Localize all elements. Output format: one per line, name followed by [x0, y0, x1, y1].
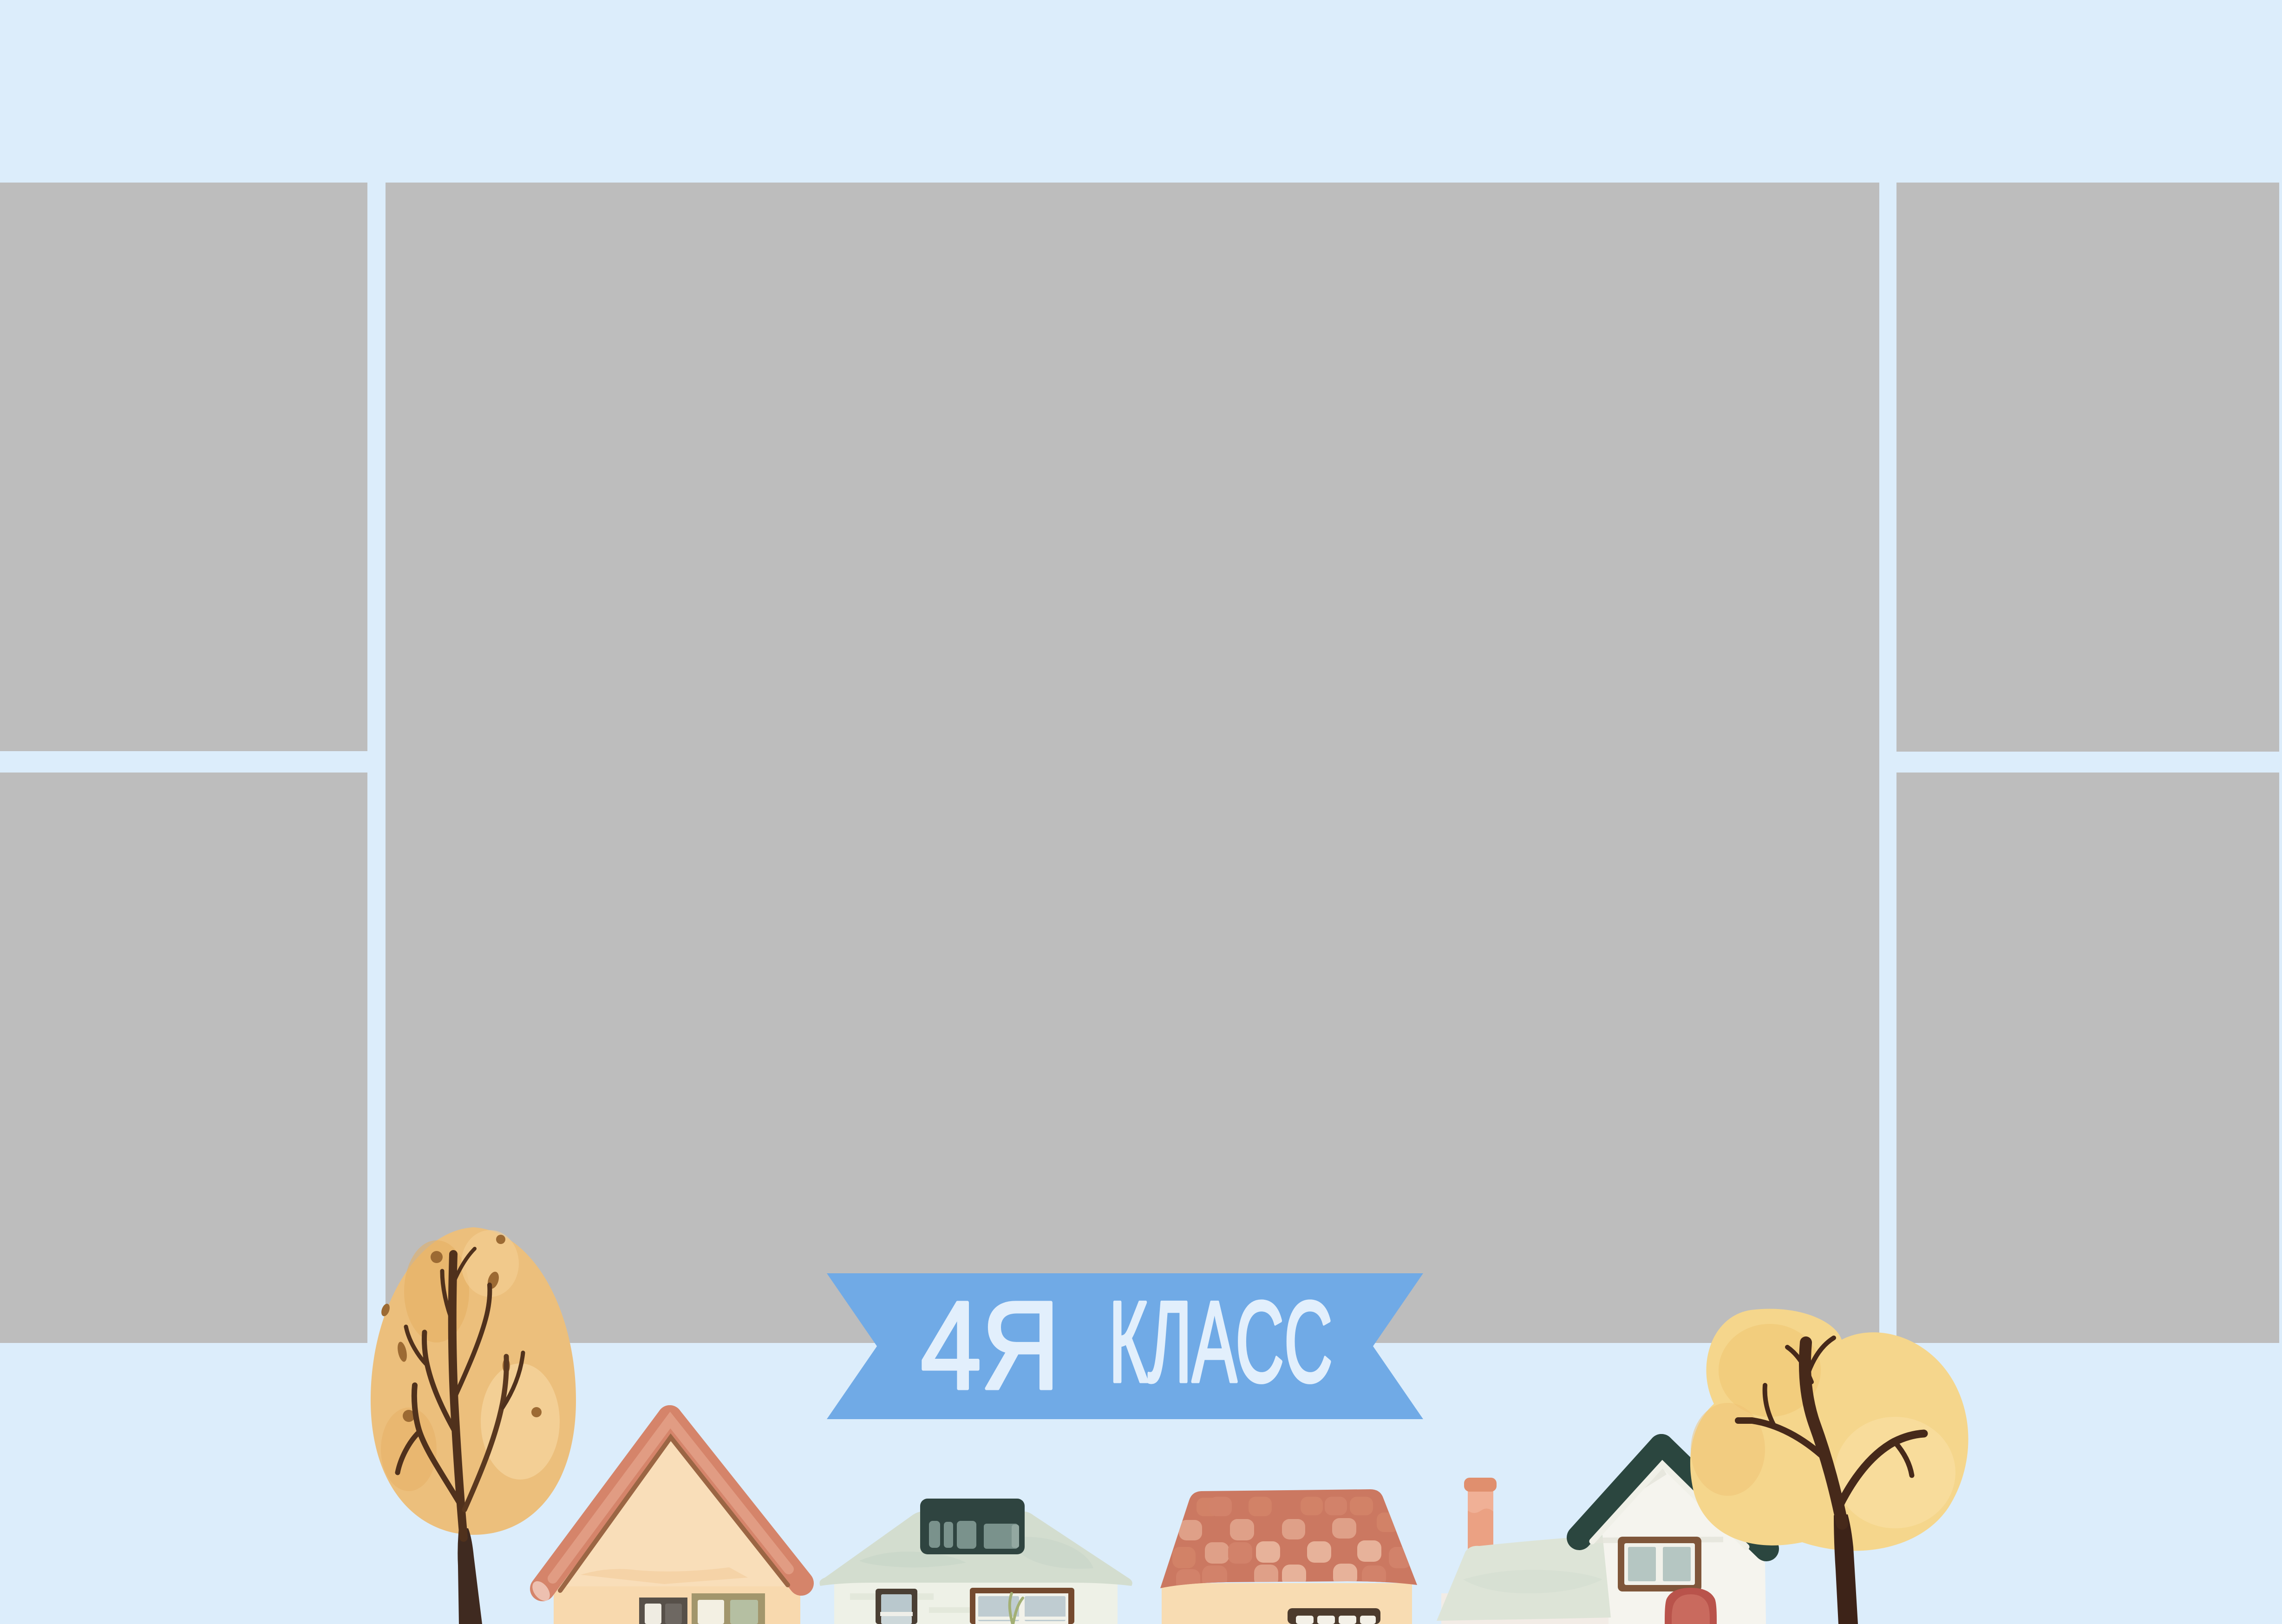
svg-text:КЛАСС: КЛАСС [1109, 1277, 1333, 1406]
svg-text:4Я: 4Я [921, 1276, 1060, 1415]
